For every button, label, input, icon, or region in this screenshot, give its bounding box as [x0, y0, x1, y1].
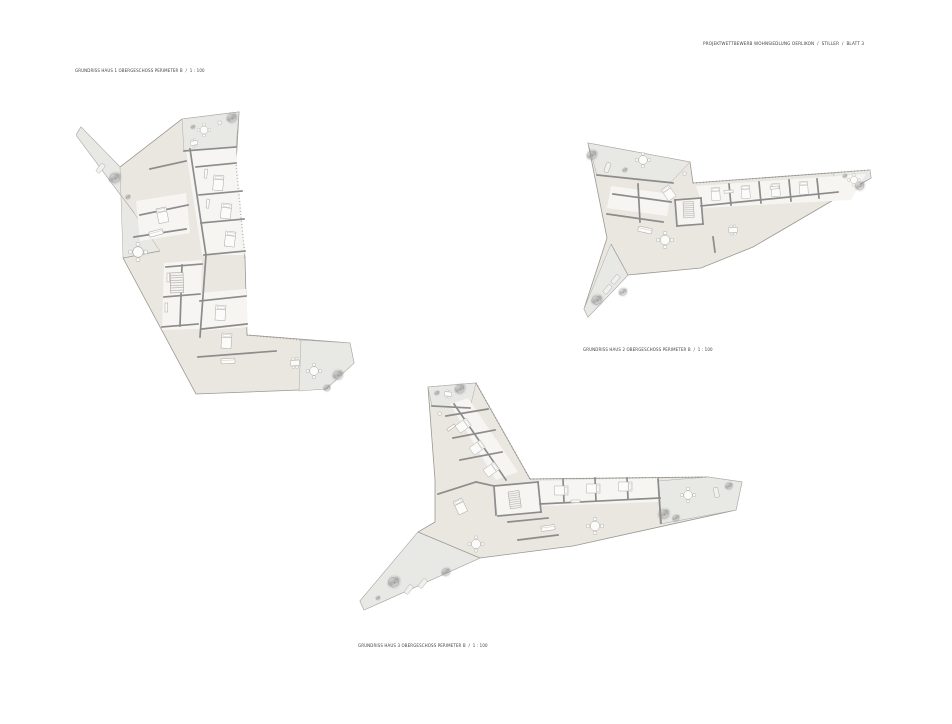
- tree-icon: [671, 513, 681, 523]
- floor-plan-haus-3-drawing: [358, 382, 746, 614]
- tree-icon: [386, 574, 402, 590]
- tree-icon: [590, 293, 605, 308]
- tree-icon: [434, 390, 441, 397]
- floor-plan-haus-3: [358, 382, 746, 614]
- tree-icon: [331, 368, 345, 382]
- tree-icon: [190, 124, 196, 130]
- tree-icon: [617, 286, 628, 297]
- floor-plan-haus-2: [583, 142, 873, 327]
- floor-plan-haus-2-drawing: [583, 142, 873, 327]
- tree-icon: [657, 507, 672, 522]
- tree-icon: [585, 148, 599, 162]
- tree-icon: [724, 481, 735, 492]
- tree-icon: [440, 566, 452, 578]
- floor-plan-haus-1-drawing: [76, 105, 356, 397]
- tree-icon: [107, 170, 122, 185]
- floor-plan-haus-3-label: GRUNDRISS HAUS 3 OBERGESCHOSS PERIMETER …: [358, 644, 488, 648]
- tree-icon: [622, 167, 629, 174]
- tree-icon: [854, 180, 867, 193]
- tree-icon: [453, 382, 467, 396]
- floor-plan-haus-1: [76, 105, 356, 397]
- tree-icon: [375, 595, 381, 601]
- tree-icon: [125, 194, 132, 201]
- tree-icon: [322, 383, 332, 393]
- sheet-canvas: PROJEKTWETTBEWERB WOHNSIEDLUNG OERLIKON …: [0, 0, 952, 724]
- tree-icon: [225, 111, 239, 125]
- sheet-title: PROJEKTWETTBEWERB WOHNSIEDLUNG OERLIKON …: [703, 42, 864, 46]
- floor-plan-haus-2-label: GRUNDRISS HAUS 2 OBERGESCHOSS PERIMETER …: [583, 348, 713, 352]
- tree-icon: [842, 173, 848, 179]
- floor-plan-haus-1-label: GRUNDRISS HAUS 1 OBERGESCHOSS PERIMETER …: [75, 69, 205, 73]
